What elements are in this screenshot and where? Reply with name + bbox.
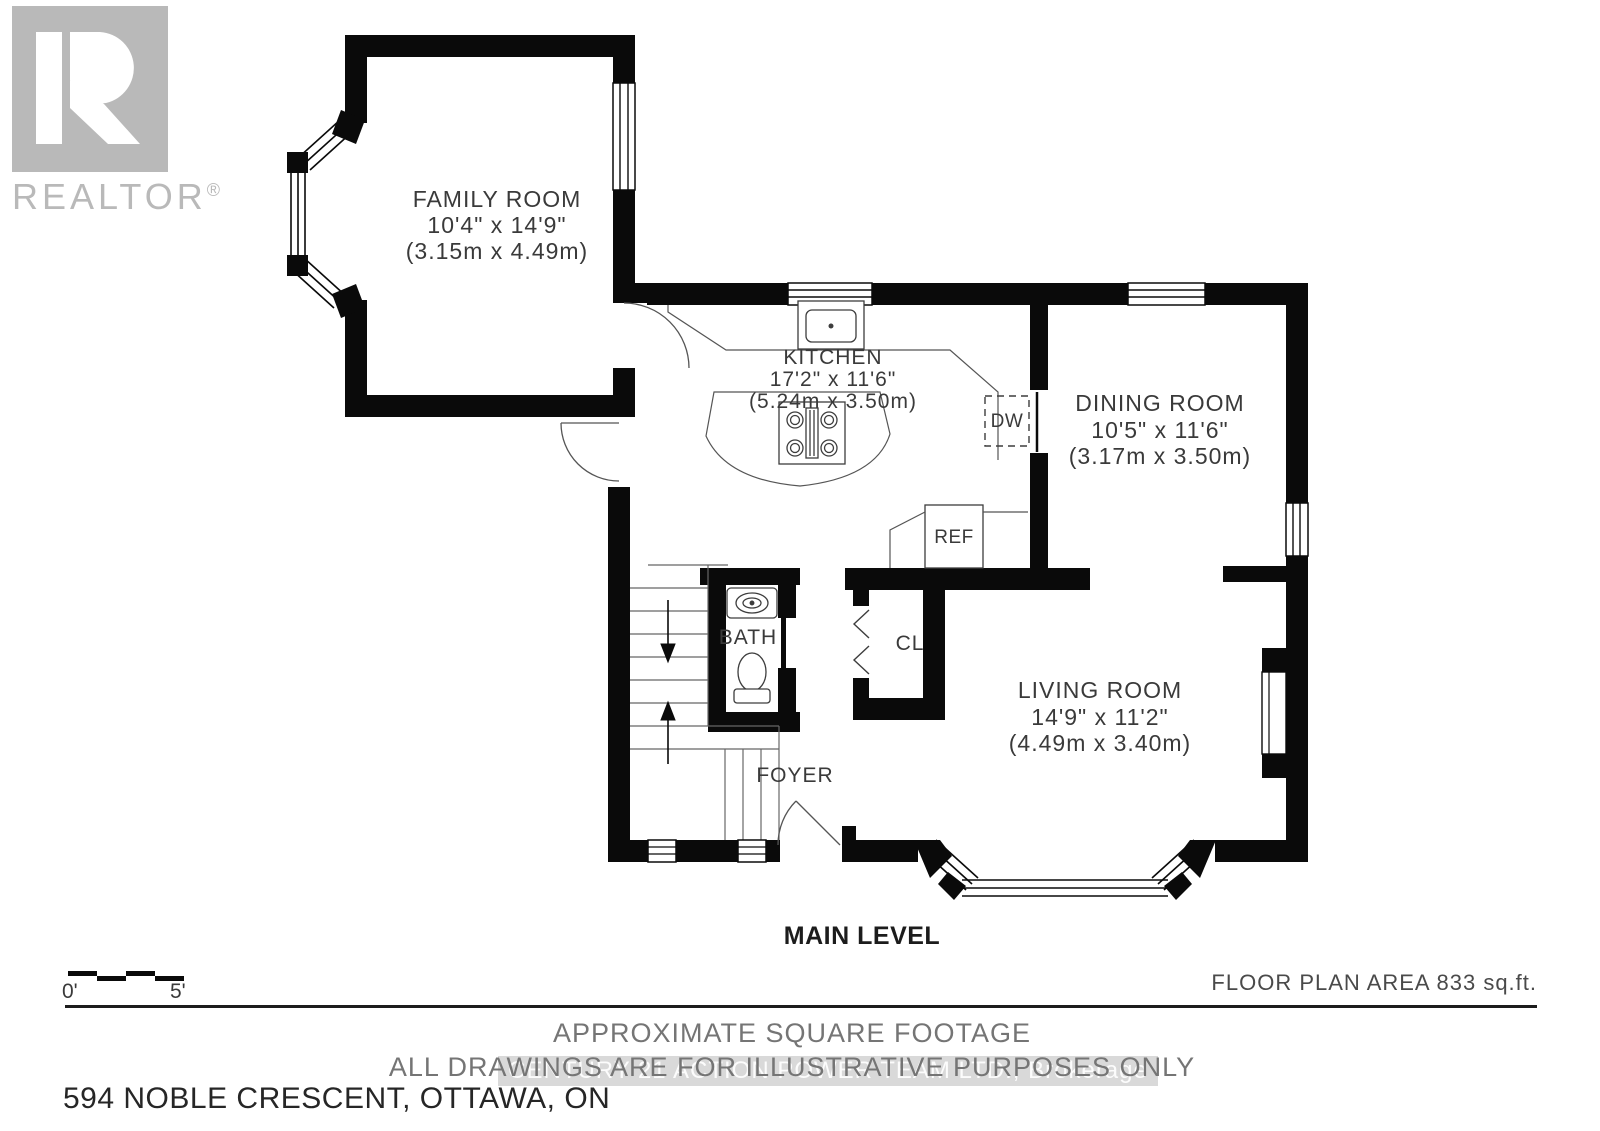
disclaimer-line1: APPROXIMATE SQUARE FOOTAGE xyxy=(553,1018,1031,1049)
closet-bifold-doors xyxy=(854,610,869,674)
side-door xyxy=(561,423,619,481)
fireplace xyxy=(1262,648,1286,778)
property-address: 594 NOBLE CRESCENT, OTTAWA, ON xyxy=(63,1082,610,1116)
dining-room-dims-ft: 10'5" x 11'6" xyxy=(1091,417,1228,444)
dining-room-label: DINING ROOM xyxy=(1075,390,1244,417)
kitchen-sink xyxy=(798,301,864,349)
family-room-door-arc xyxy=(624,303,689,368)
kitchen-dims-ft: 17'2" x 11'6" xyxy=(770,368,897,392)
disclaimer-line2: ALL DRAWINGS ARE FOR ILLUSTRATIVE PURPOS… xyxy=(389,1052,1195,1083)
kitchen-dims-m: (5.24m x 3.50m) xyxy=(749,390,917,414)
toilet xyxy=(734,653,770,703)
family-room-window xyxy=(613,83,635,190)
scale-start-label: 0' xyxy=(62,980,78,1004)
closet-label: CL xyxy=(896,632,925,656)
footer-divider xyxy=(65,1005,1537,1008)
hall-left-wall xyxy=(608,487,630,862)
dining-top-window xyxy=(1128,283,1205,305)
scale-end-label: 5' xyxy=(170,980,186,1004)
living-room-dims-ft: 14'9" x 11'2" xyxy=(1031,704,1168,731)
family-room-dims-m: (3.15m x 4.49m) xyxy=(406,238,588,265)
family-room-dims-ft: 10'4" x 14'9" xyxy=(427,212,566,239)
bath-label: BATH xyxy=(719,626,777,650)
family-room-bay-window xyxy=(291,120,352,308)
floor-plan-drawing xyxy=(0,0,1600,1131)
floor-plan-page: REALTOR® xyxy=(0,0,1600,1131)
living-room-label: LIVING ROOM xyxy=(1018,677,1182,704)
kitchen-label: KITCHEN xyxy=(783,346,882,370)
ref-label: REF xyxy=(934,527,974,549)
stair-direction-arrows xyxy=(661,600,675,764)
level-title: MAIN LEVEL xyxy=(784,922,940,951)
floor-plan-area-label: FLOOR PLAN AREA 833 sq.ft. xyxy=(1211,970,1537,996)
dining-room-dims-m: (3.17m x 3.50m) xyxy=(1069,443,1251,470)
bottom-walls xyxy=(608,826,1308,900)
entry-door xyxy=(778,801,840,845)
bath-sink xyxy=(727,588,777,618)
foyer-label: FOYER xyxy=(756,764,833,788)
living-room-dims-m: (4.49m x 3.40m) xyxy=(1009,730,1191,757)
scale-bar xyxy=(68,971,184,981)
dining-side-window xyxy=(1286,503,1308,556)
living-room-bay-window xyxy=(924,840,1206,896)
family-room-label: FAMILY ROOM xyxy=(413,186,582,213)
dw-label: DW xyxy=(991,411,1024,433)
